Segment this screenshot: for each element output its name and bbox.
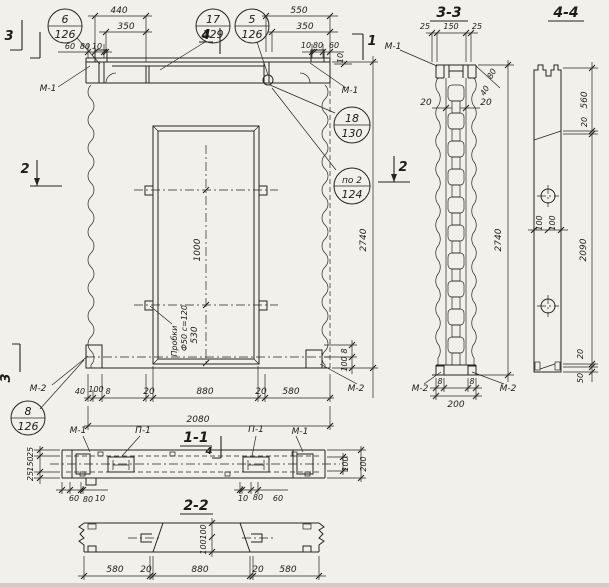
tab-tl [88,524,96,529]
plug-note: Пробки [170,326,179,357]
bar-foot-left [535,362,540,370]
dim-20: 20 [252,565,264,575]
dim-2090: 2090 [579,238,589,261]
dim-10: 10 [301,41,311,50]
dim-40: 40 [75,387,85,396]
dim-20: 20 [580,117,589,127]
beam-weld-arcs [106,73,310,83]
marker-2-left [30,160,62,186]
dim-100: 100 [340,356,349,371]
dim-20: 20 [140,565,152,575]
strip-end-right [319,523,324,552]
callout-num: 8 [25,405,32,418]
connector-p1-left-web [113,460,129,470]
callout-ref: 129 [203,28,224,41]
dim-100: 100 [535,215,544,230]
part-labels: М-1 М-1 М-2 М-2 М-2 М-2 М-1 [30,42,517,394]
label-p1: П-1 [135,426,151,436]
label-m2: М-2 [500,384,517,394]
dim-20: 20 [143,387,155,397]
section-2-2: 2-2 100 100 580 20 880 20 580 [78,498,326,580]
callout-5-126: 5 126 [235,9,269,43]
marker-2-left-arrow [34,178,40,186]
tab-tr [303,524,311,529]
label-m1: М-1 [40,84,57,94]
anchor-left-below [86,478,96,485]
dim-25: 25 [420,22,430,31]
dim-580: 580 [279,565,296,575]
callout-num: 6 [62,13,69,26]
callout-17-129: 17 129 [196,9,230,43]
marker-1-top-right [352,34,363,60]
marker-2-left-label: 2 [20,162,29,177]
callout-po2-124: по 2 124 [334,168,370,204]
callout-6-126: 6 126 [48,9,82,43]
dim-2740: 2740 [494,228,504,251]
callout-num: по 2 [342,176,362,186]
dim-200: 200 [359,456,368,471]
dim-ticks [349,59,376,371]
panel-left-edge [88,85,94,368]
section-1-1: 1-1 4 М-1 П-1 П-1 М-1 25 150 25 100 200 … [26,425,368,504]
dim-20: 20 [420,98,432,108]
dim-20: 20 [255,387,267,397]
hole-top [537,185,559,207]
marker-1-label: 1 [367,34,376,49]
opening-centerlines [134,145,278,362]
dim-25: 25 [26,471,35,481]
scan-edge [0,583,609,587]
strip-end-left [79,523,84,552]
dim-80: 80 [313,41,323,50]
connector-p1-right-web [248,460,264,470]
dim-8: 8 [437,377,442,386]
dim-350: 350 [117,22,134,32]
dim-60: 60 [329,41,339,50]
dim-bottom-ticks [433,385,479,399]
marker-3-bottom-label: 3 [0,373,14,382]
dims-main-bottom: 40 100 8 20 880 20 580 2080 [75,366,334,430]
main-elevation: 1000 530 Ф50 с=120 Пробки [86,50,330,368]
dim-8: 8 [469,377,474,386]
dim-10: 10 [238,494,248,503]
callout-ref: 130 [342,127,363,140]
void-chain [448,85,464,365]
dim-60: 60 [273,494,283,503]
edge-left [436,78,441,365]
dim-580: 580 [282,387,299,397]
callout-18-130: 18 130 [334,107,370,143]
label-p1: П-1 [248,425,264,435]
bar-foot-diagonal [540,364,555,369]
dim-80: 80 [83,495,93,504]
section-title: 2-2 [183,498,208,514]
section-title: 3-3 [436,5,461,21]
bar-foot-right [555,362,560,370]
plug-note-size: Ф50 с=120 [180,305,189,351]
section-4-4: 4-4 100 100 560 20 2090 20 50 [528,5,598,383]
label-m1: М-1 [70,426,87,436]
dim-80: 80 [485,67,498,80]
callout-8-126: 8 126 [11,401,45,435]
dim-25: 25 [26,447,35,457]
dim-350: 350 [296,22,313,32]
marker-3-top [10,20,40,58]
dim-880: 880 [196,387,213,397]
callout-ref: 126 [55,28,76,41]
label-m1: М-1 [385,42,402,52]
dim-10: 10 [95,494,105,503]
marker-2-right-label: 2 [398,160,407,175]
tab-bl [88,546,96,552]
dim-20: 20 [576,349,585,359]
callouts: 6 126 17 129 5 126 18 130 по 2 124 8 126 [11,9,370,435]
dim-580: 580 [106,565,123,575]
bar-diagonal [534,131,561,140]
label-m2: М-2 [412,384,429,394]
dim-530: 530 [190,326,200,343]
cut-markers: 3 1 4 2 2 3 [0,20,410,383]
dim-40: 40 [478,84,491,97]
edge-right [472,78,477,365]
dim-560: 560 [580,91,590,108]
callout-num: 17 [206,13,220,26]
dim-50: 50 [576,373,585,383]
callout-ref: 124 [342,188,363,201]
label-m2: М-2 [30,384,47,394]
connector-p1-left [108,457,134,472]
callout-num: 5 [249,13,256,26]
dim-2740-line [478,60,514,382]
marker-4-lines [212,436,221,458]
dim-60: 60 [69,494,79,503]
label-m2: М-2 [348,384,365,394]
top-beam [86,58,330,83]
callout-ref: 126 [18,420,39,433]
dim-lines-top [426,33,478,62]
blueprint-sheet: 1000 530 Ф50 с=120 Пробки 440 350 60 80 … [0,0,609,587]
dim-8: 8 [340,348,349,353]
dim-550: 550 [290,6,307,16]
dim-100: 100 [88,385,103,394]
connector-p1-right [243,457,269,472]
callout-ref: 126 [242,28,263,41]
section-title: 1-1 [183,430,208,446]
bottom-right-block [306,350,322,368]
label-m1: М-1 [342,86,359,96]
dim-2080: 2080 [187,415,210,425]
core-walls [446,78,466,365]
dim-chain-lines [563,62,598,382]
door-opening: 1000 530 Ф50 с=120 Пробки [134,126,278,366]
section-title: 4-4 [552,5,578,21]
callout-num: 18 [345,112,359,125]
dim-880: 880 [191,565,208,575]
panel-drawing: 1000 530 Ф50 с=120 Пробки 440 350 60 80 … [0,0,609,587]
dim-8: 8 [105,387,110,396]
cap [436,65,476,78]
dim-20: 20 [480,98,492,108]
dim-150: 150 [443,22,458,31]
hole-bottom [537,295,559,317]
section-3-3: 3-3 25 150 25 20 20 80 40 2740 8 8 200 [420,5,514,410]
dim-100: 100 [548,215,557,230]
dim-440: 440 [110,6,127,16]
marker-4-label: 4 [205,446,213,457]
base-block-right [468,366,476,375]
dim-25: 25 [472,22,482,31]
dim-10-rot: 10 [336,53,345,63]
marker-3-top-label: 3 [4,29,13,44]
dim-100: 100 [199,539,208,554]
tab-br [303,546,311,552]
label-m1: М-1 [292,427,309,437]
marker-2-right-arrow [391,174,397,182]
dim-80: 80 [253,493,263,502]
callout-leaders [40,38,336,409]
dim-100: 100 [199,524,208,539]
base-block-left [436,366,444,375]
dim-2740: 2740 [359,228,369,251]
dim-100: 100 [341,456,350,471]
dim-150: 150 [26,456,35,471]
dim-10: 10 [92,42,102,51]
dim-1000: 1000 [193,238,203,261]
panel-right-edge [322,85,328,368]
marker-3-bottom [12,344,20,372]
dim-200: 200 [447,400,464,410]
